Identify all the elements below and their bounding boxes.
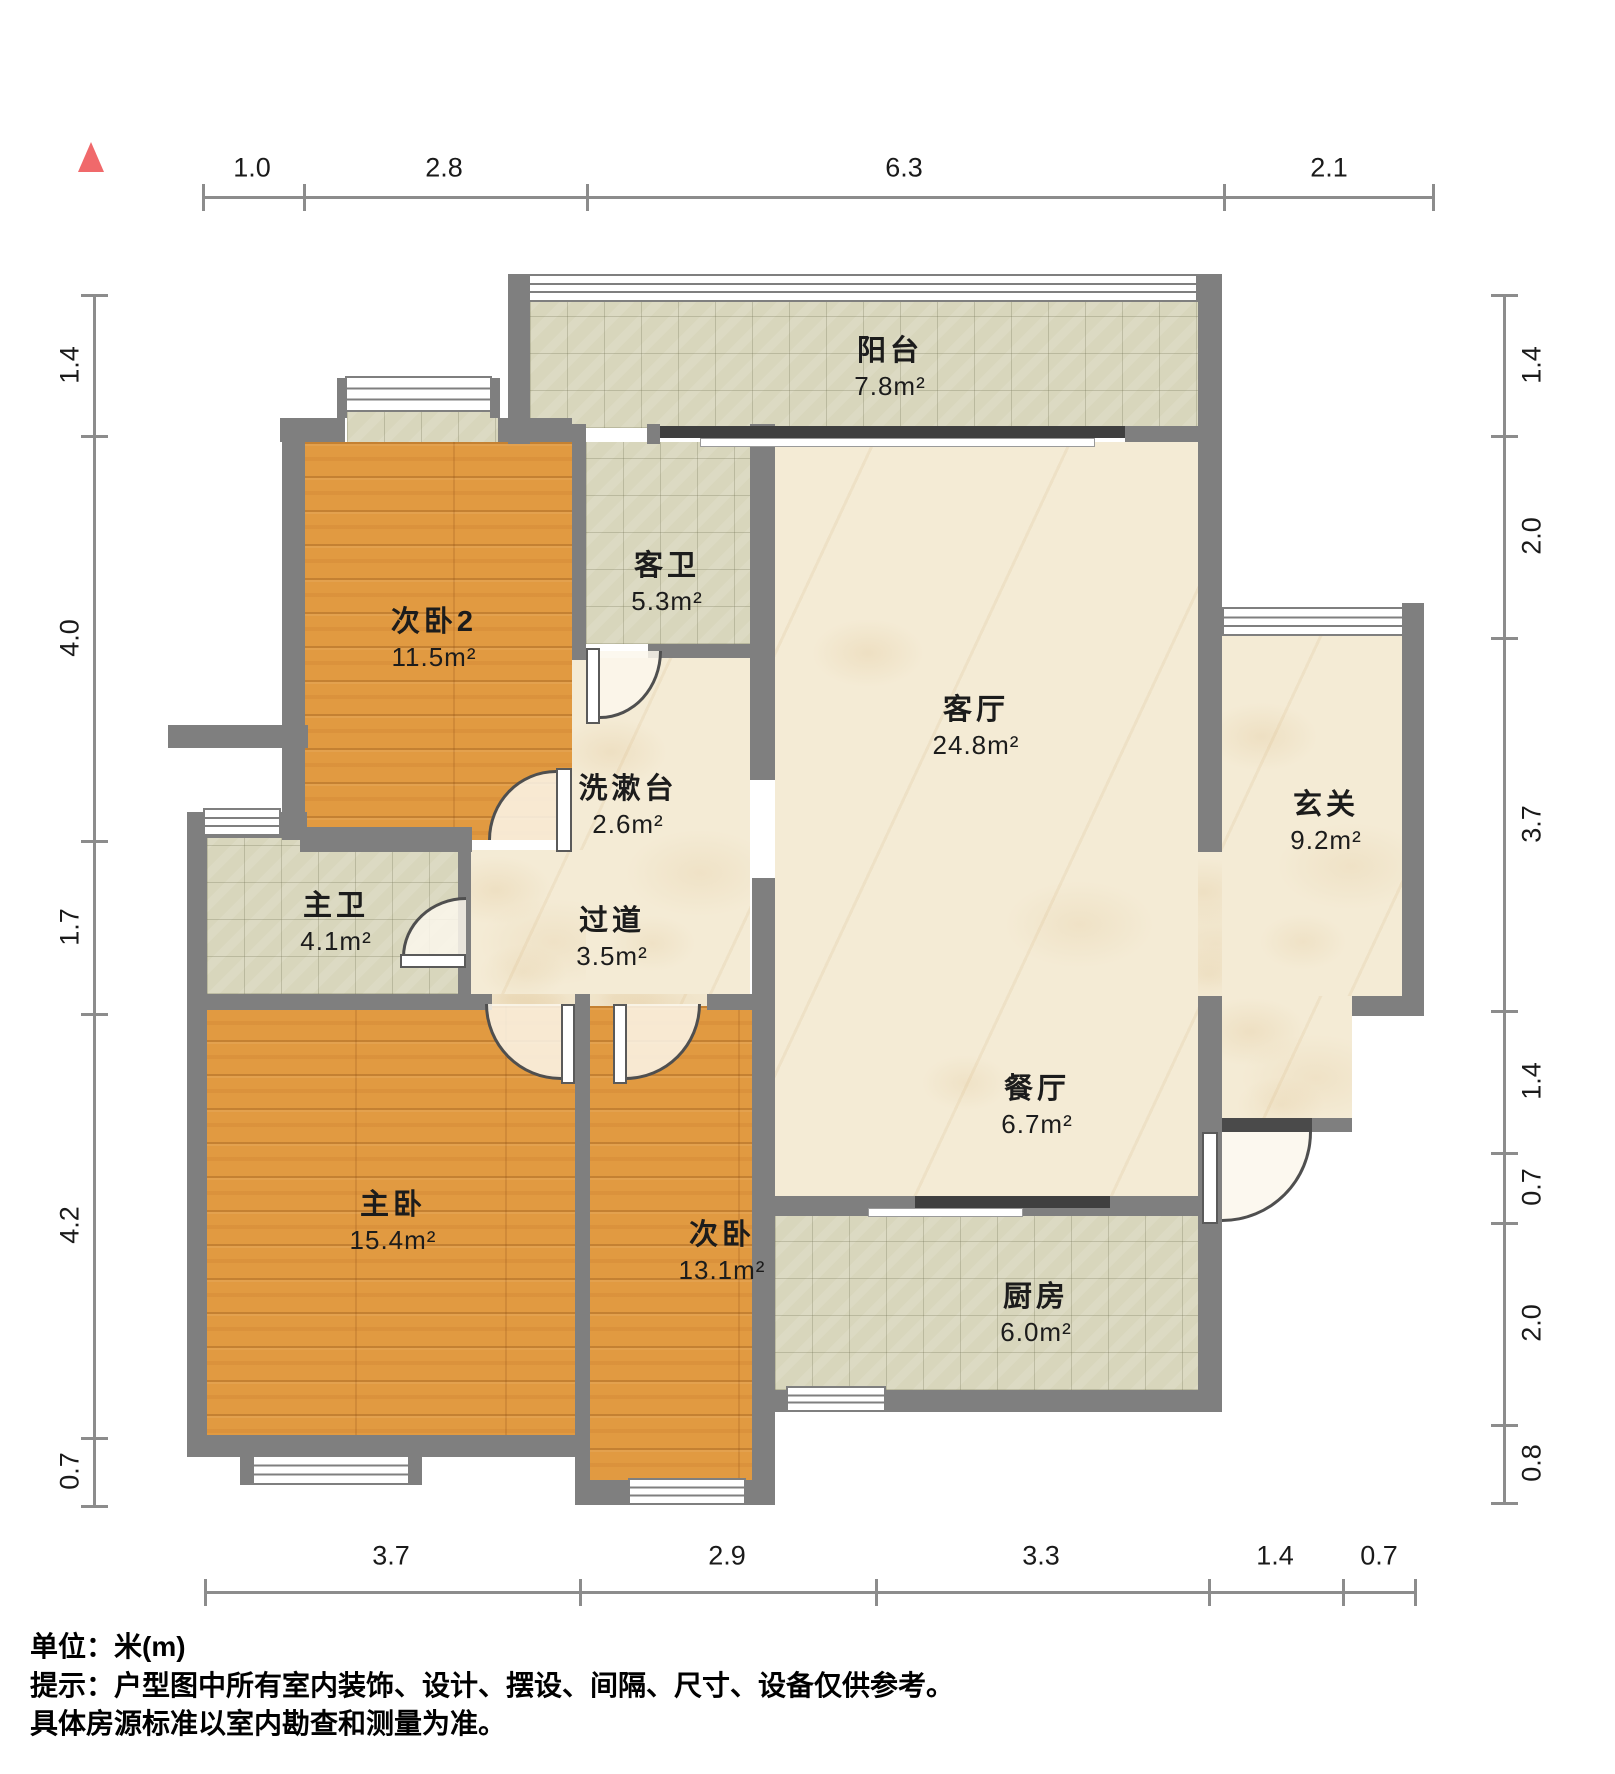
footer-note1: 提示：户型图中所有室内装饰、设计、摆设、间隔、尺寸、设备仅供参考。 <box>30 1667 954 1706</box>
door-leaf-master-bath <box>400 954 466 968</box>
room-label-master-bath: 主卫 4.1m² <box>300 889 371 957</box>
sliding-door-kitchen <box>915 1196 1110 1208</box>
window-kitchen <box>786 1386 886 1412</box>
wall <box>1402 603 1424 1016</box>
dimension-tick <box>1491 294 1518 297</box>
room-label-balcony: 阳台 7.8m² <box>854 334 925 402</box>
dimension-tick <box>1432 184 1435 211</box>
wall <box>300 827 472 852</box>
dim-label: 3.7 <box>372 1541 410 1572</box>
dimension-tick <box>1414 1579 1417 1606</box>
room-name: 餐厅 <box>1001 1072 1072 1107</box>
window-balcony <box>528 274 1198 302</box>
dimension-tick <box>1491 637 1518 640</box>
wall <box>647 424 660 444</box>
wall <box>1198 274 1222 852</box>
room-label-foyer: 玄关 9.2m² <box>1290 788 1361 856</box>
window-master-bay <box>252 1455 410 1485</box>
dimension-tick <box>81 1437 108 1440</box>
wall <box>498 418 572 442</box>
dimension-tick <box>586 184 589 211</box>
dim-label: 0.7 <box>55 1452 86 1490</box>
dimension-tick <box>875 1579 878 1606</box>
dimension-tick <box>303 184 306 211</box>
room-label-dining: 餐厅 6.7m² <box>1001 1072 1072 1140</box>
dimension-tick <box>81 294 108 297</box>
footer-unit: 单位：米(m) <box>30 1628 954 1667</box>
room-area: 7.8m² <box>854 371 925 402</box>
room-label-washstand: 洗漱台 2.6m² <box>578 772 677 840</box>
north-indicator-icon <box>78 142 104 172</box>
room-area: 3.5m² <box>576 941 647 972</box>
room-label-living: 客厅 24.8m² <box>933 693 1020 761</box>
dimension-tick <box>1491 1010 1518 1013</box>
dimension-line-bottom <box>204 1591 1417 1594</box>
door-arc-entry <box>1222 1132 1312 1222</box>
dim-label: 3.3 <box>1022 1541 1060 1572</box>
wall <box>750 424 775 780</box>
sliding-door-balcony <box>660 426 1125 438</box>
room-label-kitchen: 厨房 6.0m² <box>1000 1280 1071 1348</box>
dim-label: 1.0 <box>233 153 271 184</box>
room-name: 厨房 <box>1000 1280 1071 1315</box>
dim-label: 2.1 <box>1310 153 1348 184</box>
room-label-master-bedroom: 主卧 15.4m² <box>350 1188 437 1256</box>
dim-label: 3.7 <box>1517 805 1548 843</box>
footer-note2: 具体房源标准以室内勘查和测量为准。 <box>30 1705 954 1744</box>
room-name: 次卧2 <box>391 605 477 640</box>
floor-foyer-entry <box>1222 996 1352 1124</box>
floor-living-dining <box>775 442 1198 1196</box>
sliding-door-balcony-panel <box>700 438 1095 447</box>
dimension-tick <box>1491 1222 1518 1225</box>
dim-label: 1.4 <box>55 346 86 384</box>
room-area: 11.5m² <box>391 642 477 673</box>
wall <box>648 644 750 658</box>
door-leaf-bedroom <box>613 1004 627 1084</box>
wall <box>168 725 308 748</box>
dimension-tick <box>579 1579 582 1606</box>
wall <box>282 418 305 840</box>
sliding-door-kitchen-panel <box>868 1208 1023 1217</box>
wall <box>240 1457 252 1485</box>
dim-label: 1.4 <box>1517 1062 1548 1100</box>
room-name: 客卫 <box>631 549 702 584</box>
dim-label: 1.4 <box>1256 1541 1294 1572</box>
dimension-tick <box>1491 1424 1518 1427</box>
dim-label: 4.0 <box>55 619 86 657</box>
door-leaf-guest-bath <box>586 648 600 724</box>
room-name: 阳台 <box>854 334 925 369</box>
dimension-line-top <box>202 196 1435 199</box>
dimension-tick <box>81 1013 108 1016</box>
dim-label: 2.0 <box>1517 1304 1548 1342</box>
door-leaf-entry <box>1202 1132 1218 1224</box>
room-area: 9.2m² <box>1290 825 1361 856</box>
room-name: 主卫 <box>300 889 371 924</box>
room-name: 玄关 <box>1290 788 1361 823</box>
dimension-tick <box>81 435 108 438</box>
room-area: 6.0m² <box>1000 1317 1071 1348</box>
room-label-hallway: 过道 3.5m² <box>576 904 647 972</box>
wall <box>187 812 207 1457</box>
room-label-bedroom2: 次卧2 11.5m² <box>391 605 477 673</box>
wall <box>1312 1118 1352 1132</box>
wall <box>575 994 590 1480</box>
floor-bay-sill <box>347 410 498 444</box>
dimension-tick <box>202 184 205 211</box>
dimension-tick <box>1223 184 1226 211</box>
dimension-tick <box>1491 1152 1518 1155</box>
dim-label: 1.4 <box>1517 346 1548 384</box>
door-leaf-master-bedroom <box>561 1004 575 1084</box>
dim-label: 2.0 <box>1517 517 1548 555</box>
entry-door-frame <box>1222 1118 1312 1132</box>
footer-notes: 单位：米(m) 提示：户型图中所有室内装饰、设计、摆设、间隔、尺寸、设备仅供参考… <box>30 1628 954 1744</box>
window-bedroom2-bay <box>345 376 492 412</box>
room-name: 洗漱台 <box>578 772 677 807</box>
room-label-guest-bath: 客卫 5.3m² <box>631 549 702 617</box>
dim-label: 0.7 <box>1517 1168 1548 1206</box>
room-area: 2.6m² <box>578 809 677 840</box>
wall <box>1352 996 1424 1016</box>
room-area: 24.8m² <box>933 730 1020 761</box>
wall <box>410 1457 422 1485</box>
floor-hallway-left <box>471 850 586 994</box>
dim-label: 0.8 <box>1517 1444 1548 1482</box>
dimension-tick <box>204 1579 207 1606</box>
dim-label: 2.8 <box>425 153 463 184</box>
dim-label: 4.2 <box>55 1206 86 1244</box>
dimension-tick <box>81 1505 108 1508</box>
dimension-line-left <box>93 294 96 1508</box>
floor-foyer-link <box>1198 852 1222 996</box>
room-area: 6.7m² <box>1001 1109 1072 1140</box>
floor-kitchen <box>775 1216 1198 1390</box>
wall <box>707 994 775 1010</box>
dim-label: 6.3 <box>885 153 923 184</box>
window-foyer <box>1222 607 1404 636</box>
room-name: 次卧 <box>679 1218 766 1253</box>
room-area: 15.4m² <box>350 1225 437 1256</box>
wall <box>1125 426 1198 442</box>
dim-label: 2.9 <box>708 1541 746 1572</box>
room-area: 13.1m² <box>679 1255 766 1286</box>
dimension-tick <box>1342 1579 1345 1606</box>
dimension-tick <box>81 840 108 843</box>
dim-label: 0.7 <box>1360 1541 1398 1572</box>
room-area: 4.1m² <box>300 926 371 957</box>
floorplan-canvas: 阳台 7.8m² 次卧2 11.5m² 客卫 5.3m² 客厅 24.8m² 玄… <box>0 0 1615 1774</box>
dimension-tick <box>1491 1502 1518 1505</box>
room-label-bedroom: 次卧 13.1m² <box>679 1218 766 1286</box>
wall <box>572 424 586 660</box>
dimension-tick <box>1208 1579 1211 1606</box>
window-bedroom <box>628 1478 746 1505</box>
door-leaf-bedroom2 <box>556 768 572 852</box>
room-name: 客厅 <box>933 693 1020 728</box>
dimension-tick <box>1491 435 1518 438</box>
room-area: 5.3m² <box>631 586 702 617</box>
room-name: 主卧 <box>350 1188 437 1223</box>
wall <box>187 1435 590 1457</box>
wall <box>187 994 492 1010</box>
window-master-bath <box>203 808 281 836</box>
dimension-line-right <box>1503 294 1506 1505</box>
dim-label: 1.7 <box>55 908 86 946</box>
room-name: 过道 <box>576 904 647 939</box>
